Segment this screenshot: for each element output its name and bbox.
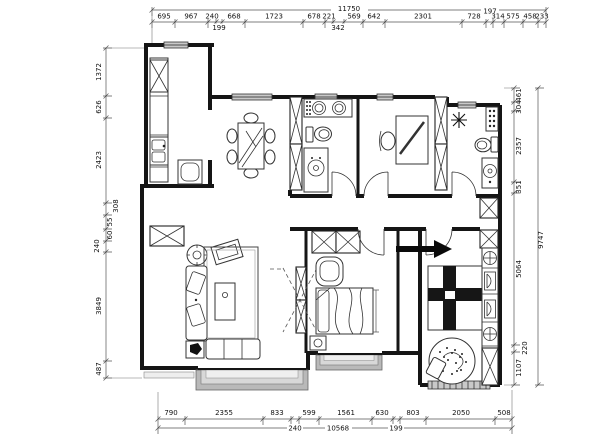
- dim-left-0: 1372: [95, 63, 103, 81]
- desk-chair: [380, 131, 396, 151]
- dim-left-1: 626: [95, 100, 103, 114]
- shower-icon: [451, 112, 467, 128]
- dim-bottom-2: 833: [270, 409, 283, 417]
- floor-plan-drawing: 11750 695 967 240 199 668 1723 678 221 3…: [0, 0, 610, 442]
- door-arc: [452, 172, 476, 196]
- dim-top-0: 695: [157, 13, 170, 21]
- nightstand: [310, 336, 326, 350]
- dim-right-2: 2357: [515, 137, 523, 155]
- dim-bottom-4: 599: [302, 409, 315, 417]
- shaft-column-left: [290, 97, 302, 190]
- dim-top-17: 233: [535, 13, 548, 21]
- dim-top-15: 575: [506, 13, 519, 21]
- door-arc: [364, 172, 388, 196]
- dim-top-12: 728: [467, 13, 480, 21]
- bay-window-living: [196, 369, 308, 390]
- dim-right-5: 220: [521, 341, 529, 354]
- dim-top-2: 240: [205, 13, 218, 21]
- dim-left-3: 308: [112, 199, 120, 212]
- door-arc: [358, 229, 384, 255]
- dim-top-1: 967: [184, 13, 197, 21]
- side-stool: [211, 239, 243, 264]
- sofa-chaise: [186, 266, 207, 340]
- bedroom-secondary: [310, 257, 379, 350]
- dim-bottom-9: 2050: [452, 409, 470, 417]
- dim-top-3: 199: [212, 24, 225, 32]
- dim-top-14: 314: [491, 13, 505, 21]
- dim-top-7: 221: [322, 13, 335, 21]
- column-master: [480, 230, 498, 248]
- dim-bottom-8: 803: [406, 409, 419, 417]
- dim-left-7: 3849: [95, 297, 103, 315]
- dim-left-8: 487: [95, 362, 103, 375]
- bathroom-second: [451, 107, 498, 188]
- dim-bottom-0: 790: [164, 409, 177, 417]
- dim-bottom-1: 2355: [215, 409, 233, 417]
- control-panel: [486, 107, 498, 131]
- floor-plan-canvas: 11750 695 967 240 199 668 1723 678 221 3…: [0, 0, 610, 442]
- entry-arrow-icon: [396, 240, 452, 258]
- tv-feature-panel: [296, 267, 306, 333]
- kitchen: [150, 58, 202, 184]
- wash-basin: [482, 158, 498, 188]
- dining-chair: [265, 150, 275, 164]
- dim-top-10: 642: [367, 13, 380, 21]
- desk: [396, 116, 428, 164]
- windows: [164, 42, 490, 389]
- dining-table: [238, 123, 264, 169]
- kitchen-sink: [150, 137, 168, 165]
- dim-right-6: 1107: [515, 359, 523, 377]
- door-arc: [332, 172, 356, 196]
- dim-top-8: 342: [331, 24, 344, 32]
- right-chain-line: [511, 86, 520, 388]
- dim-top-9: 569: [347, 13, 360, 21]
- dim-right-3: 351: [515, 180, 523, 193]
- dim-bottom-10: 508: [497, 409, 510, 417]
- dim-top-11: 2301: [414, 13, 432, 21]
- shower-area: [304, 148, 328, 192]
- dim-top-5: 1723: [265, 13, 283, 21]
- dining-chair: [244, 113, 258, 123]
- dining-chair: [227, 129, 237, 143]
- master-bedroom: [426, 248, 498, 385]
- dim-bottom-6: 630: [375, 409, 388, 417]
- bathroom-main: [304, 99, 352, 192]
- shaft-column-right: [435, 97, 447, 190]
- dim-right-1: 304: [515, 100, 523, 114]
- stove: [178, 160, 202, 184]
- dim-top-4: 668: [227, 13, 240, 21]
- dim-bottom-total: 10568: [327, 425, 349, 433]
- sofa-main: [206, 339, 260, 359]
- dim-left-4: 55: [106, 218, 114, 227]
- dim-left-5: 60: [106, 231, 114, 240]
- dim-top-6: 678: [307, 13, 320, 21]
- dim-left-2: 2423: [95, 151, 103, 169]
- dim-right-4: 5064: [515, 260, 523, 278]
- feature-cross-dashed: [270, 268, 317, 332]
- side-table-plant: [186, 341, 204, 358]
- wardrobe-bedroom: [312, 231, 360, 253]
- dim-left-6: 240: [93, 239, 101, 252]
- bed-master: [428, 266, 482, 330]
- vanity-double-basin: [304, 99, 352, 117]
- bed-secondary: [316, 288, 373, 334]
- coffee-table: [215, 283, 235, 320]
- toilet: [475, 137, 498, 152]
- dim-bottom-7: 199: [389, 425, 402, 433]
- dim-right-total: 9747: [537, 231, 545, 249]
- left-chain-line: [103, 46, 112, 381]
- mini-dimension: [373, 290, 379, 332]
- left-step-ledge: [144, 372, 194, 378]
- dim-bottom-5: 1561: [337, 409, 355, 417]
- study: [380, 116, 429, 164]
- dining-set: [227, 113, 275, 178]
- column-bath2: [480, 198, 498, 218]
- dim-right-0: 461: [515, 88, 523, 101]
- wardrobe-master-strip: [482, 248, 498, 385]
- shoe-cabinet: [150, 226, 184, 246]
- fridge: [150, 60, 168, 92]
- bay-window-bedroom: [316, 354, 382, 370]
- armchair: [316, 257, 343, 286]
- toilet: [306, 127, 332, 142]
- dim-bottom-3: 240: [288, 425, 301, 433]
- dining-chair: [265, 129, 275, 143]
- dining-chair: [227, 150, 237, 164]
- round-rattan-chair: [426, 338, 475, 384]
